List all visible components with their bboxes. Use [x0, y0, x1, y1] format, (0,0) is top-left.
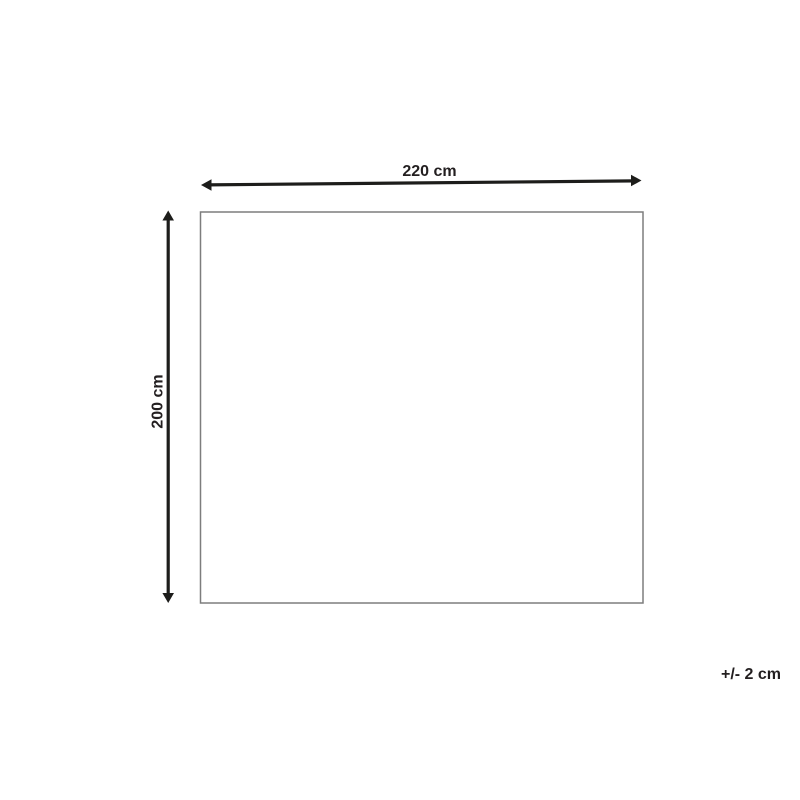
svg-text:220 cm: 220 cm	[402, 163, 456, 180]
svg-text:200 cm: 200 cm	[150, 374, 167, 428]
svg-text:+/- 2 cm: +/- 2 cm	[721, 666, 781, 683]
